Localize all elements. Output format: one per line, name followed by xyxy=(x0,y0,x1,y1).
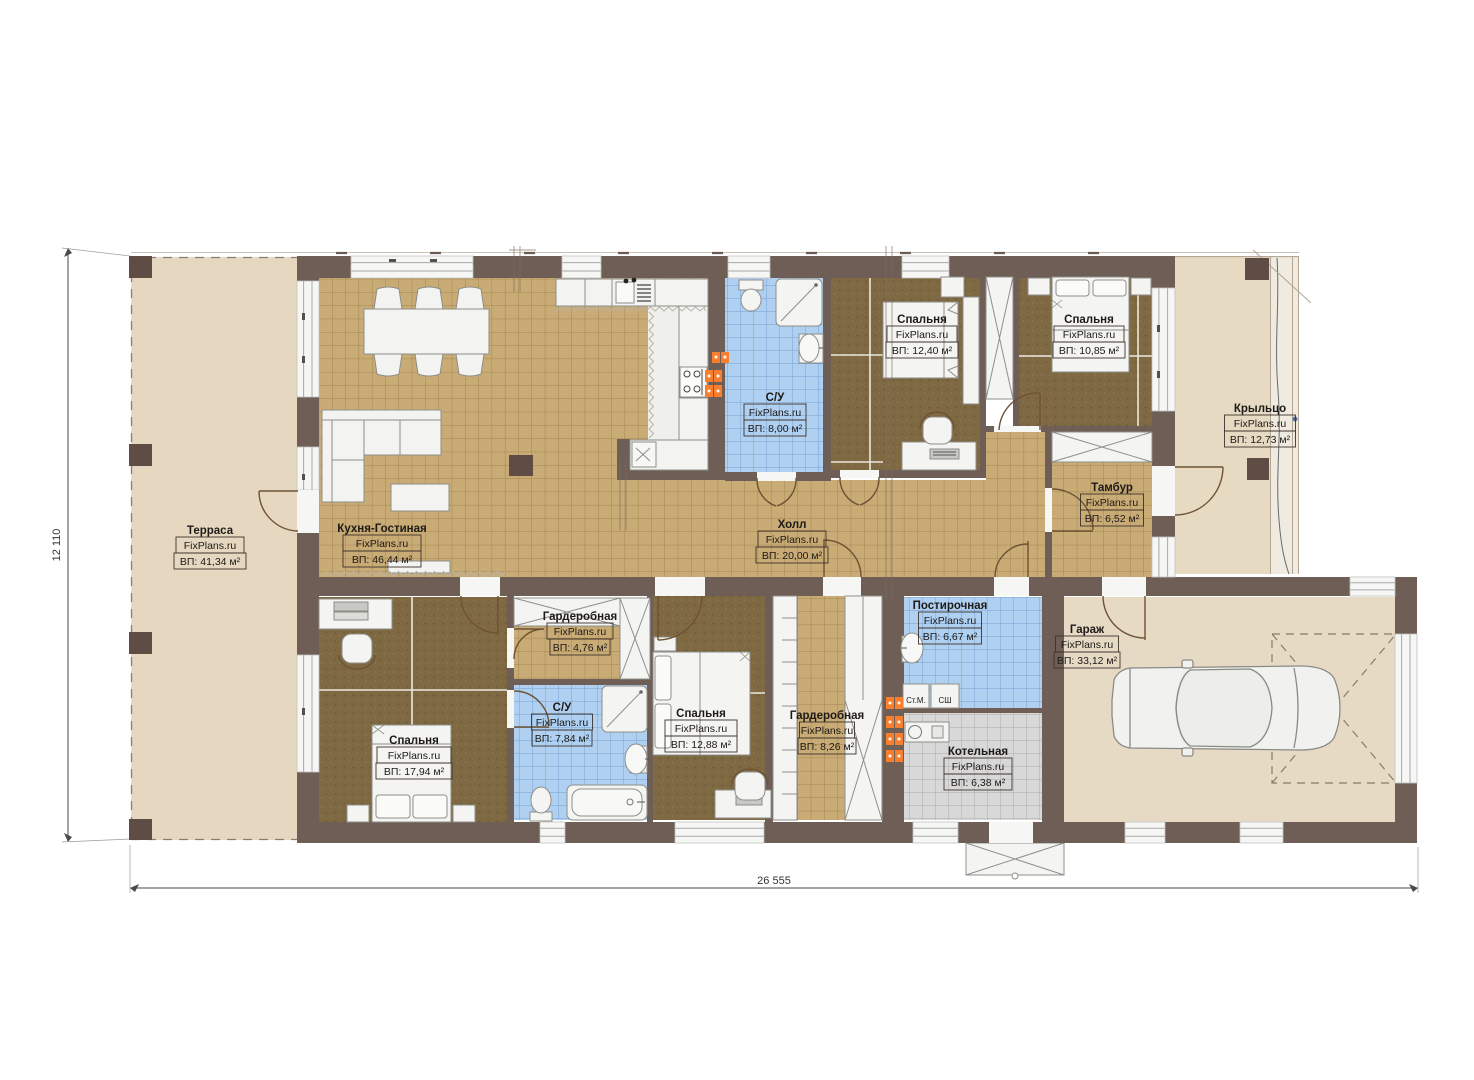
svg-text:FixPlans.ru: FixPlans.ru xyxy=(801,725,854,737)
svg-text:FixPlans.ru: FixPlans.ru xyxy=(924,615,977,627)
svg-text:26 555: 26 555 xyxy=(757,875,791,887)
svg-text:ВП: 10,85 м²: ВП: 10,85 м² xyxy=(1059,345,1120,357)
svg-text:ВП: 8,26 м²: ВП: 8,26 м² xyxy=(800,741,855,753)
svg-text:Постирочная: Постирочная xyxy=(913,600,988,612)
svg-text:Гараж: Гараж xyxy=(1070,624,1105,636)
svg-text:FixPlans.ru: FixPlans.ru xyxy=(554,626,607,638)
svg-text:С/У: С/У xyxy=(553,702,573,714)
svg-text:FixPlans.ru: FixPlans.ru xyxy=(184,540,237,552)
svg-text:ВП: 7,84 м²: ВП: 7,84 м² xyxy=(535,733,590,745)
svg-text:ВП: 6,67 м²: ВП: 6,67 м² xyxy=(923,631,978,643)
svg-text:Гардеробная: Гардеробная xyxy=(543,611,617,623)
svg-text:Спальня: Спальня xyxy=(389,735,439,747)
svg-text:ВП: 46,44 м²: ВП: 46,44 м² xyxy=(352,554,413,566)
svg-text:СШ: СШ xyxy=(938,696,951,705)
svg-text:Котельная: Котельная xyxy=(948,746,1008,758)
svg-text:FixPlans.ru: FixPlans.ru xyxy=(766,534,819,546)
svg-text:ВП: 12,73 м²: ВП: 12,73 м² xyxy=(1230,434,1291,446)
svg-text:FixPlans.ru: FixPlans.ru xyxy=(356,538,409,550)
svg-text:FixPlans.ru: FixPlans.ru xyxy=(896,329,949,341)
svg-text:ВП: 20,00 м²: ВП: 20,00 м² xyxy=(762,550,823,562)
svg-text:FixPlans.ru: FixPlans.ru xyxy=(749,407,802,419)
svg-text:ВП: 41,34 м²: ВП: 41,34 м² xyxy=(180,556,241,568)
svg-text:ВП: 4,76 м²: ВП: 4,76 м² xyxy=(553,642,608,654)
svg-text:ВП: 17,94 м²: ВП: 17,94 м² xyxy=(384,766,445,778)
svg-text:Спальня: Спальня xyxy=(676,708,726,720)
svg-text:12 110: 12 110 xyxy=(51,529,63,562)
svg-text:Холл: Холл xyxy=(778,519,807,531)
svg-text:Гардеробная: Гардеробная xyxy=(790,710,864,722)
svg-text:FixPlans.ru: FixPlans.ru xyxy=(952,761,1005,773)
svg-text:С/У: С/У xyxy=(766,392,786,404)
svg-text:ВП: 8,00 м²: ВП: 8,00 м² xyxy=(748,423,803,435)
svg-text:ВП: 12,88 м²: ВП: 12,88 м² xyxy=(671,739,732,751)
svg-text:ВП: 12,40 м²: ВП: 12,40 м² xyxy=(892,345,953,357)
svg-text:Терраса: Терраса xyxy=(187,525,234,537)
svg-text:FixPlans.ru: FixPlans.ru xyxy=(1234,418,1287,430)
svg-text:ВП: 33,12 м²: ВП: 33,12 м² xyxy=(1057,655,1118,667)
svg-text:FixPlans.ru: FixPlans.ru xyxy=(388,750,441,762)
svg-text:ВП: 6,38 м²: ВП: 6,38 м² xyxy=(951,777,1006,789)
svg-text:FixPlans.ru: FixPlans.ru xyxy=(1061,639,1114,651)
svg-text:FixPlans.ru: FixPlans.ru xyxy=(1063,329,1116,341)
svg-text:Тамбур: Тамбур xyxy=(1091,482,1133,494)
svg-text:Крыльцо: Крыльцо xyxy=(1234,403,1286,415)
svg-text:Ст.М.: Ст.М. xyxy=(906,696,926,705)
svg-text:FixPlans.ru: FixPlans.ru xyxy=(536,717,589,729)
svg-text:Спальня: Спальня xyxy=(897,314,947,326)
svg-text:Спальня: Спальня xyxy=(1064,314,1114,326)
svg-text:FixPlans.ru: FixPlans.ru xyxy=(675,723,728,735)
svg-text:FixPlans.ru: FixPlans.ru xyxy=(1086,497,1139,509)
svg-text:Кухня-Гостиная: Кухня-Гостиная xyxy=(337,523,426,535)
svg-text:ВП: 6,52 м²: ВП: 6,52 м² xyxy=(1085,513,1140,525)
